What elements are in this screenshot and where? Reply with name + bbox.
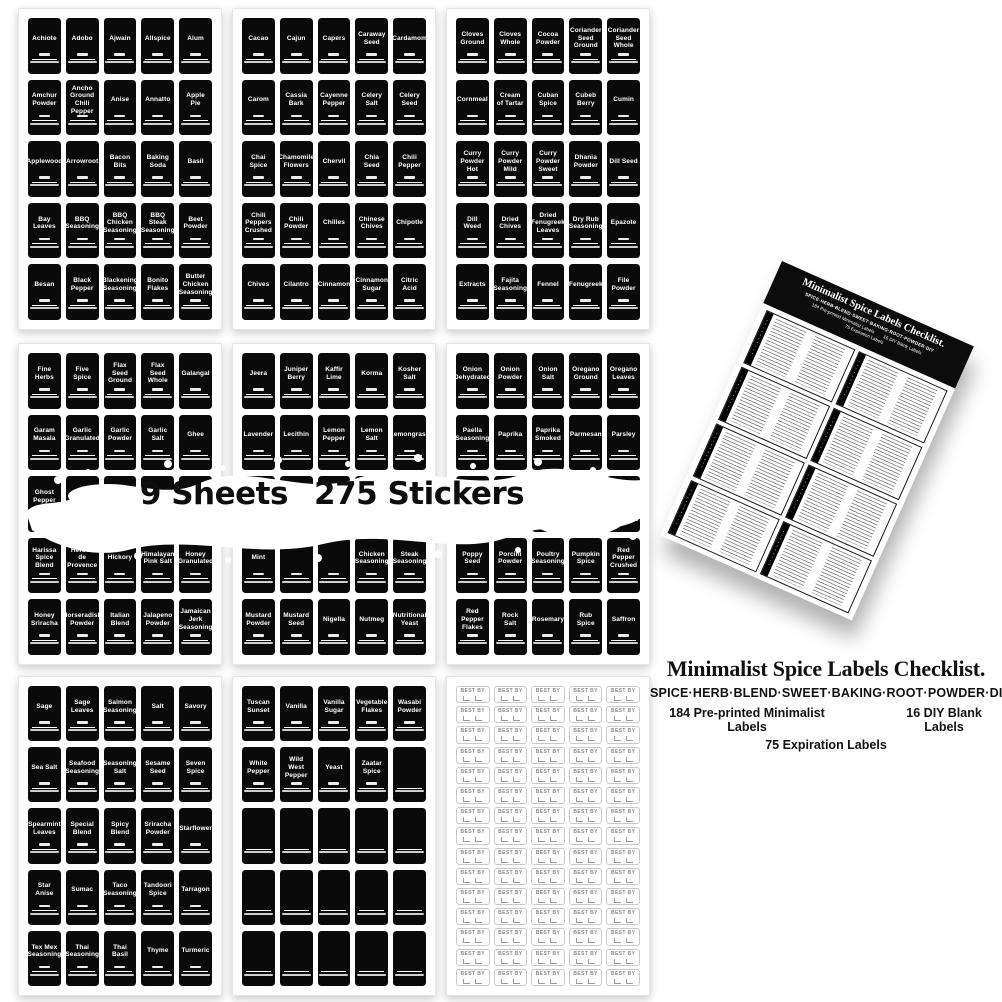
spice-label-name: Parmesan bbox=[569, 423, 602, 448]
spice-label-name: Chilies bbox=[321, 211, 347, 236]
date-slots bbox=[576, 837, 595, 842]
label-category-mark bbox=[366, 53, 377, 56]
spice-label bbox=[318, 808, 351, 863]
label-divider bbox=[397, 578, 422, 579]
best-by-text: BEST BY bbox=[573, 871, 597, 876]
label-category-mark bbox=[404, 721, 415, 724]
label-category-mark bbox=[152, 721, 163, 724]
spice-label-name: Juniper Berry bbox=[280, 361, 313, 386]
sticker-sheet-2: CacaoCajunCapersCaraway SeedCardamomCaro… bbox=[232, 8, 436, 330]
spice-label-name bbox=[294, 878, 298, 903]
label-divider bbox=[359, 120, 384, 121]
label-divider bbox=[611, 394, 636, 395]
expiration-label: BEST BY bbox=[569, 908, 603, 925]
label-divider bbox=[107, 305, 132, 306]
spice-label-name bbox=[408, 939, 412, 964]
best-by-text: BEST BY bbox=[461, 770, 485, 775]
label-divider bbox=[535, 305, 560, 306]
label-divider bbox=[321, 727, 346, 728]
label-fineprint-mark bbox=[458, 642, 487, 644]
label-category-mark bbox=[39, 176, 50, 179]
label-fineprint-mark bbox=[181, 396, 210, 398]
label-divider bbox=[246, 120, 271, 121]
label-fineprint-mark bbox=[496, 123, 525, 125]
spice-label-name: Parsley bbox=[610, 423, 638, 448]
date-slots bbox=[576, 938, 595, 943]
spice-label: Thai Basil bbox=[104, 931, 137, 986]
spice-label-name bbox=[294, 939, 298, 964]
date-slots bbox=[538, 696, 557, 701]
label-fineprint-mark bbox=[395, 642, 424, 644]
label-category-mark bbox=[467, 53, 478, 56]
label-divider bbox=[145, 182, 170, 183]
label-category-mark bbox=[328, 388, 339, 391]
spice-label: Cayenne Pepper bbox=[318, 80, 351, 136]
spice-label: Adobo bbox=[66, 18, 99, 74]
label-divider bbox=[246, 788, 271, 789]
spice-label-name: Celery Salt bbox=[355, 88, 388, 113]
label-fineprint-mark bbox=[357, 307, 386, 309]
info-subtitle: SPICE·HERB·BLEND·SWEET·BAKING·ROOT·POWDE… bbox=[650, 686, 1002, 700]
label-category-mark bbox=[366, 115, 377, 118]
label-fineprint-mark bbox=[458, 61, 487, 63]
spice-label: Celery Salt bbox=[355, 80, 388, 136]
label-divider bbox=[107, 971, 132, 972]
label-fineprint-mark bbox=[282, 790, 311, 792]
spice-label: Turmeric bbox=[179, 931, 212, 986]
label-category-mark bbox=[404, 573, 415, 576]
label-divider bbox=[397, 910, 422, 911]
label-fineprint-mark bbox=[533, 61, 562, 63]
best-by-text: BEST BY bbox=[461, 810, 485, 815]
label-category-mark bbox=[190, 299, 201, 302]
date-slots bbox=[576, 918, 595, 923]
spice-label: Anise bbox=[104, 80, 137, 136]
expiration-label: BEST BY bbox=[531, 908, 565, 925]
spice-label-name: Jalapeno Powder bbox=[141, 607, 174, 632]
label-fineprint-mark bbox=[357, 729, 386, 731]
spice-label-name bbox=[408, 878, 412, 903]
spice-label-name: Dhania Powder bbox=[569, 149, 602, 174]
label-fineprint-mark bbox=[105, 913, 134, 915]
label-category-mark bbox=[618, 634, 629, 637]
best-by-text: BEST BY bbox=[536, 952, 560, 957]
label-divider bbox=[498, 578, 523, 579]
best-by-text: BEST BY bbox=[573, 770, 597, 775]
spice-label-name: Cloves Whole bbox=[494, 26, 527, 51]
expiration-label: BEST BY bbox=[606, 767, 640, 784]
label-divider bbox=[573, 182, 598, 183]
label-fineprint-mark bbox=[105, 396, 134, 398]
label-divider bbox=[70, 727, 95, 728]
label-divider bbox=[460, 305, 485, 306]
best-by-text: BEST BY bbox=[611, 972, 635, 977]
label-category-mark bbox=[253, 782, 264, 785]
label-divider bbox=[397, 394, 422, 395]
best-by-text: BEST BY bbox=[536, 911, 560, 916]
info-expiration-count: 75 Expiration Labels bbox=[650, 738, 1002, 752]
date-slots bbox=[463, 716, 482, 721]
spice-label: Tandoori Spice bbox=[141, 870, 174, 925]
label-category-mark bbox=[39, 905, 50, 908]
spice-label: Curry Powder Mild bbox=[494, 141, 527, 197]
best-by-text: BEST BY bbox=[611, 709, 635, 714]
expiration-label: BEST BY bbox=[531, 807, 565, 824]
info-text-block: Minimalist Spice Labels Checklist. SPICE… bbox=[650, 656, 1002, 752]
label-category-mark bbox=[580, 573, 591, 576]
spice-label: BBQ Chicken Seasoning bbox=[104, 203, 137, 259]
spice-label: Onion Salt bbox=[532, 353, 565, 409]
label-divider bbox=[70, 182, 95, 183]
best-by-text: BEST BY bbox=[461, 830, 485, 835]
spice-label-name: Lemongrass bbox=[393, 423, 426, 448]
spice-label-name: Chamomile Flowers bbox=[280, 149, 313, 174]
best-by-text: BEST BY bbox=[498, 790, 522, 795]
spice-label-name: Seasoning Salt bbox=[104, 755, 137, 780]
expiration-label: BEST BY bbox=[494, 848, 528, 865]
expiration-label: BEST BY bbox=[606, 928, 640, 945]
expiration-label: BEST BY bbox=[606, 848, 640, 865]
best-by-text: BEST BY bbox=[461, 709, 485, 714]
label-divider bbox=[284, 120, 309, 121]
expiration-label: BEST BY bbox=[456, 747, 490, 764]
label-category-mark bbox=[253, 573, 264, 576]
spice-label: Cubeb Berry bbox=[569, 80, 602, 136]
spice-label-name: Mustard Powder bbox=[242, 607, 275, 632]
spice-label-name bbox=[370, 939, 374, 964]
spice-label: Mustard Powder bbox=[242, 599, 275, 655]
spice-label-name: Cinnamon Sugar bbox=[355, 272, 388, 297]
expiration-label: BEST BY bbox=[494, 807, 528, 824]
label-divider bbox=[70, 640, 95, 641]
label-fineprint-mark bbox=[30, 913, 59, 915]
spice-label: Curry Powder Hot bbox=[456, 141, 489, 197]
label-category-mark bbox=[467, 573, 478, 576]
label-category-mark bbox=[291, 782, 302, 785]
label-category-mark bbox=[542, 388, 553, 391]
expiration-label: BEST BY bbox=[456, 949, 490, 966]
label-divider bbox=[32, 910, 57, 911]
spice-label: Fenugreek bbox=[569, 264, 602, 320]
spice-label-name: BBQ Seasoning bbox=[66, 211, 99, 236]
expiration-label: BEST BY bbox=[606, 868, 640, 885]
best-by-text: BEST BY bbox=[611, 790, 635, 795]
label-category-mark bbox=[39, 966, 50, 969]
date-slots bbox=[614, 736, 633, 741]
spice-label: Thai Seasoning bbox=[66, 931, 99, 986]
label-divider bbox=[246, 640, 271, 641]
label-divider bbox=[573, 305, 598, 306]
spice-label-name: Arrowroot bbox=[66, 149, 99, 174]
expiration-label: BEST BY bbox=[606, 807, 640, 824]
spice-label-name: Onion Salt bbox=[532, 361, 565, 386]
label-fineprint-mark bbox=[105, 581, 134, 583]
label-category-mark bbox=[253, 721, 264, 724]
label-fineprint-mark bbox=[533, 246, 562, 248]
label-fineprint-mark bbox=[68, 642, 97, 644]
label-category-mark bbox=[505, 573, 516, 576]
spice-label-name: Sage Leaves bbox=[66, 694, 99, 719]
spice-label: Beet Powder bbox=[179, 203, 212, 259]
label-divider bbox=[321, 849, 346, 850]
expiration-label: BEST BY bbox=[569, 888, 603, 905]
label-divider bbox=[183, 788, 208, 789]
best-by-text: BEST BY bbox=[461, 911, 485, 916]
label-category-mark bbox=[618, 176, 629, 179]
label-divider bbox=[145, 305, 170, 306]
label-divider bbox=[32, 971, 57, 972]
label-fineprint-mark bbox=[609, 307, 638, 309]
label-fineprint-mark bbox=[143, 123, 172, 125]
label-fineprint-mark bbox=[68, 729, 97, 731]
spice-label: Dry Rub Seasoning bbox=[569, 203, 602, 259]
label-divider bbox=[183, 727, 208, 728]
label-divider bbox=[145, 120, 170, 121]
label-fineprint-mark bbox=[282, 61, 311, 63]
label-divider bbox=[107, 243, 132, 244]
spice-label: Onion Powder bbox=[494, 353, 527, 409]
label-fineprint-mark bbox=[571, 184, 600, 186]
spice-label-name: Sriracha Powder bbox=[141, 816, 174, 841]
label-category-mark bbox=[77, 905, 88, 908]
spice-label: Vanilla bbox=[280, 686, 313, 741]
checklist-card: Minimalist Spice Labels Checklist. SPICE… bbox=[660, 261, 974, 620]
label-divider bbox=[145, 640, 170, 641]
spice-label-name: Apple Pie bbox=[179, 88, 212, 113]
spice-label-name: Oregano Leaves bbox=[607, 361, 640, 386]
label-category-mark bbox=[404, 115, 415, 118]
best-by-text: BEST BY bbox=[461, 790, 485, 795]
label-category-mark bbox=[542, 176, 553, 179]
label-fineprint-mark bbox=[143, 851, 172, 853]
expiration-label: BEST BY bbox=[606, 908, 640, 925]
expiration-label: BEST BY bbox=[456, 807, 490, 824]
label-divider bbox=[611, 182, 636, 183]
label-divider bbox=[70, 243, 95, 244]
label-fineprint-mark bbox=[30, 790, 59, 792]
spice-label-name: Coriander Seed Whole bbox=[607, 26, 640, 51]
spice-label-name: Spearmint Leaves bbox=[28, 816, 61, 841]
label-divider bbox=[397, 640, 422, 641]
spice-label-name: Fenugreek bbox=[569, 272, 602, 297]
label-divider bbox=[498, 182, 523, 183]
label-category-mark bbox=[404, 634, 415, 637]
label-divider bbox=[397, 243, 422, 244]
spice-label-name: Extracts bbox=[457, 272, 487, 297]
label-category-mark bbox=[291, 176, 302, 179]
spice-label-name: Annatto bbox=[143, 88, 172, 113]
label-fineprint-mark bbox=[68, 184, 97, 186]
label-fineprint-mark bbox=[244, 642, 273, 644]
label-divider bbox=[145, 849, 170, 850]
spice-label-name: Capers bbox=[321, 26, 348, 51]
spice-label-name: Carom bbox=[246, 88, 271, 113]
label-divider bbox=[32, 394, 57, 395]
date-slots bbox=[576, 858, 595, 863]
best-by-text: BEST BY bbox=[536, 871, 560, 876]
best-by-text: BEST BY bbox=[461, 891, 485, 896]
date-slots bbox=[501, 817, 520, 822]
label-divider bbox=[535, 640, 560, 641]
best-by-text: BEST BY bbox=[536, 931, 560, 936]
spice-label-name: Jamaican Jerk Seasoning bbox=[179, 607, 212, 632]
spice-label: Chilies bbox=[318, 203, 351, 259]
best-by-text: BEST BY bbox=[461, 729, 485, 734]
best-by-text: BEST BY bbox=[498, 952, 522, 957]
label-divider bbox=[70, 120, 95, 121]
label-fineprint-mark bbox=[357, 790, 386, 792]
spice-label-name: Nutmeg bbox=[357, 607, 386, 632]
best-by-text: BEST BY bbox=[536, 709, 560, 714]
label-fineprint-mark bbox=[244, 307, 273, 309]
spice-label: Cream of Tartar bbox=[494, 80, 527, 136]
spice-label: Coriander Seed Ground bbox=[569, 18, 602, 74]
label-category-mark bbox=[467, 115, 478, 118]
label-divider bbox=[611, 120, 636, 121]
spice-label-name: Besan bbox=[32, 272, 56, 297]
label-category-mark bbox=[77, 238, 88, 241]
spice-label: Kaffir Lime bbox=[318, 353, 351, 409]
spice-label-name: File Powder bbox=[607, 272, 640, 297]
spice-label-name: Chives bbox=[245, 272, 271, 297]
spice-label bbox=[393, 808, 426, 863]
label-divider bbox=[573, 578, 598, 579]
label-divider bbox=[573, 59, 598, 60]
label-divider bbox=[145, 910, 170, 911]
label-fineprint-mark bbox=[533, 396, 562, 398]
label-divider bbox=[32, 578, 57, 579]
date-slots bbox=[501, 736, 520, 741]
date-slots bbox=[463, 898, 482, 903]
expiration-label: BEST BY bbox=[494, 787, 528, 804]
spice-label: Applewood bbox=[28, 141, 61, 197]
spice-label: Dried Chives bbox=[494, 203, 527, 259]
spice-label: Rock Salt bbox=[494, 599, 527, 655]
spice-label: Sesame Seed bbox=[141, 747, 174, 802]
best-by-text: BEST BY bbox=[573, 911, 597, 916]
label-fineprint-mark bbox=[395, 61, 424, 63]
spice-label-name: Zaatar Spice bbox=[355, 755, 388, 780]
label-category-mark bbox=[291, 299, 302, 302]
spice-label-name: Garlic Powder bbox=[104, 423, 137, 448]
best-by-text: BEST BY bbox=[536, 972, 560, 977]
spice-label bbox=[318, 870, 351, 925]
label-category-mark bbox=[190, 843, 201, 846]
best-by-text: BEST BY bbox=[536, 891, 560, 896]
label-category-mark bbox=[467, 388, 478, 391]
label-divider bbox=[107, 640, 132, 641]
spice-label-name bbox=[256, 816, 260, 841]
label-divider bbox=[321, 394, 346, 395]
best-by-text: BEST BY bbox=[573, 729, 597, 734]
spice-label: Salt bbox=[141, 686, 174, 741]
spice-label-name: Cocoa Powder bbox=[532, 26, 565, 51]
label-fineprint-mark bbox=[395, 581, 424, 583]
date-slots bbox=[501, 979, 520, 984]
label-divider bbox=[246, 182, 271, 183]
spice-label: Cocoa Powder bbox=[532, 18, 565, 74]
sticker-sheet-8: Tuscan SunsetVanillaVanilla SugarVegetab… bbox=[232, 676, 436, 996]
label-fineprint-mark bbox=[244, 729, 273, 731]
best-by-text: BEST BY bbox=[536, 750, 560, 755]
spice-label-name: Red Pepper Flakes bbox=[456, 607, 489, 632]
best-by-text: BEST BY bbox=[536, 830, 560, 835]
date-slots bbox=[538, 858, 557, 863]
label-category-mark bbox=[114, 634, 125, 637]
expiration-label: BEST BY bbox=[456, 726, 490, 743]
label-divider bbox=[246, 849, 271, 850]
label-divider bbox=[145, 394, 170, 395]
label-divider bbox=[535, 243, 560, 244]
label-fineprint-mark bbox=[395, 974, 424, 976]
label-category-mark bbox=[542, 238, 553, 241]
label-divider bbox=[183, 243, 208, 244]
spice-label: Chinese Chives bbox=[355, 203, 388, 259]
spice-label-name: Dry Rub Seasoning bbox=[569, 211, 602, 236]
spice-label: Fajita Seasoning bbox=[494, 264, 527, 320]
spice-label: Cardamom bbox=[393, 18, 426, 74]
spice-label-name: Chili Pepper bbox=[393, 149, 426, 174]
spice-label: Annatto bbox=[141, 80, 174, 136]
paint-splash: 9 Sheets 275 Stickers bbox=[18, 450, 646, 566]
spice-label: Cloves Whole bbox=[494, 18, 527, 74]
label-category-mark bbox=[77, 721, 88, 724]
label-divider bbox=[284, 849, 309, 850]
label-category-mark bbox=[190, 115, 201, 118]
expiration-label: BEST BY bbox=[494, 928, 528, 945]
label-fineprint-mark bbox=[105, 307, 134, 309]
date-slots bbox=[463, 817, 482, 822]
date-slots bbox=[463, 736, 482, 741]
label-divider bbox=[107, 727, 132, 728]
spice-label-name: Italian Blend bbox=[104, 607, 137, 632]
product-image-canvas: AchioteAdoboAjwainAllspiceAlumAmchur Pow… bbox=[0, 0, 1002, 1002]
date-slots bbox=[614, 938, 633, 943]
label-category-mark bbox=[328, 238, 339, 241]
expiration-label: BEST BY bbox=[606, 787, 640, 804]
label-category-mark bbox=[152, 573, 163, 576]
spice-label-name: Special Blend bbox=[66, 816, 99, 841]
label-divider bbox=[359, 59, 384, 60]
label-category-mark bbox=[618, 388, 629, 391]
spice-label: Cacao bbox=[242, 18, 275, 74]
spice-label bbox=[242, 931, 275, 986]
spice-label: BBQ Seasoning bbox=[66, 203, 99, 259]
label-divider bbox=[321, 578, 346, 579]
date-slots bbox=[576, 797, 595, 802]
spice-label: Nigella bbox=[318, 599, 351, 655]
label-fineprint-mark bbox=[496, 307, 525, 309]
label-divider bbox=[246, 971, 271, 972]
label-fineprint-mark bbox=[571, 642, 600, 644]
spice-label: Red Pepper Flakes bbox=[456, 599, 489, 655]
label-category-mark bbox=[366, 238, 377, 241]
label-divider bbox=[107, 910, 132, 911]
spice-label-name: Seven Spice bbox=[179, 755, 212, 780]
date-slots bbox=[576, 878, 595, 883]
spice-label: Cuban Spice bbox=[532, 80, 565, 136]
label-fineprint-mark bbox=[458, 123, 487, 125]
label-divider bbox=[183, 182, 208, 183]
label-divider bbox=[460, 640, 485, 641]
spice-label-name: Citric Acid bbox=[393, 272, 426, 297]
label-divider bbox=[498, 59, 523, 60]
best-by-text: BEST BY bbox=[573, 810, 597, 815]
best-by-text: BEST BY bbox=[536, 851, 560, 856]
label-category-mark bbox=[253, 53, 264, 56]
label-category-mark bbox=[114, 843, 125, 846]
expiration-label: BEST BY bbox=[569, 686, 603, 703]
